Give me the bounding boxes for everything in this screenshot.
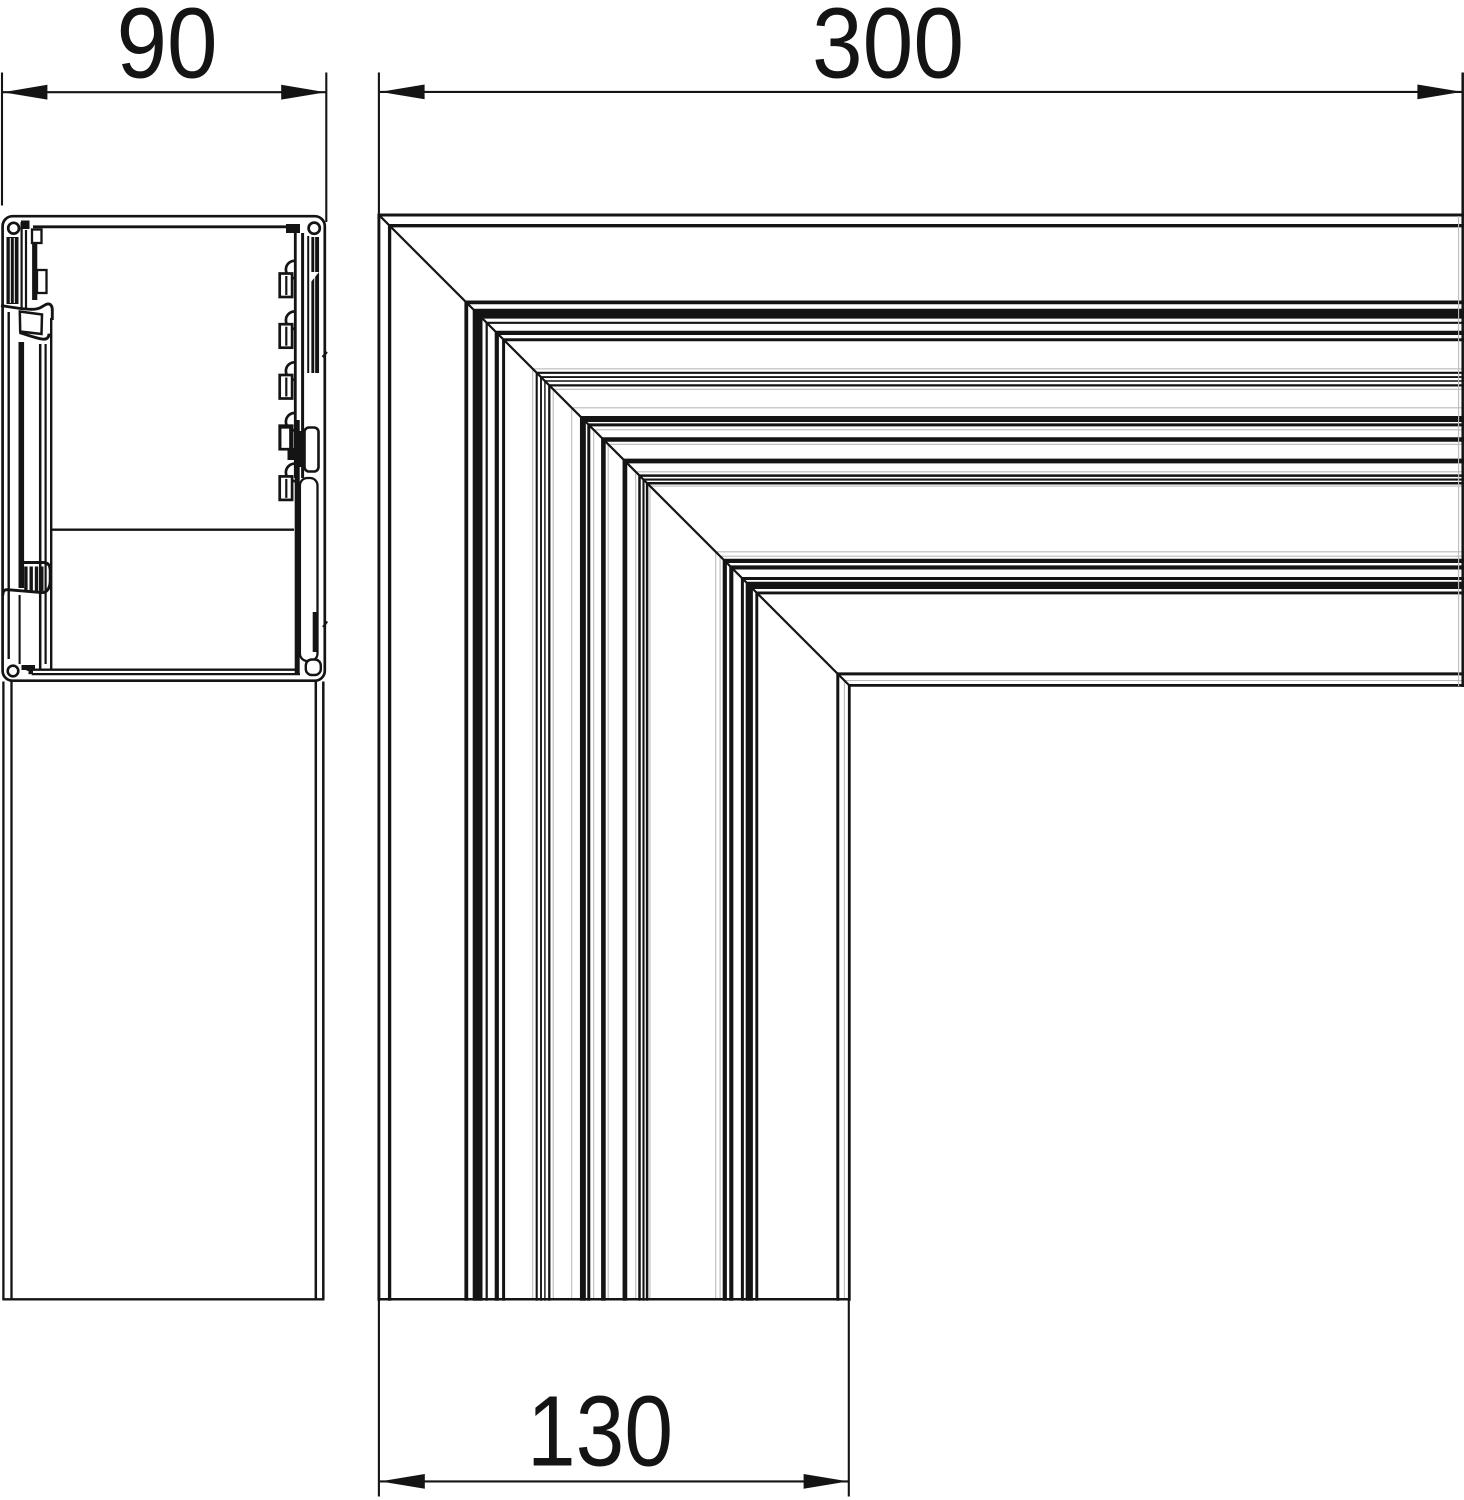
- svg-text:90: 90: [117, 0, 218, 100]
- svg-text:300: 300: [812, 0, 964, 100]
- svg-text:130: 130: [527, 1376, 673, 1488]
